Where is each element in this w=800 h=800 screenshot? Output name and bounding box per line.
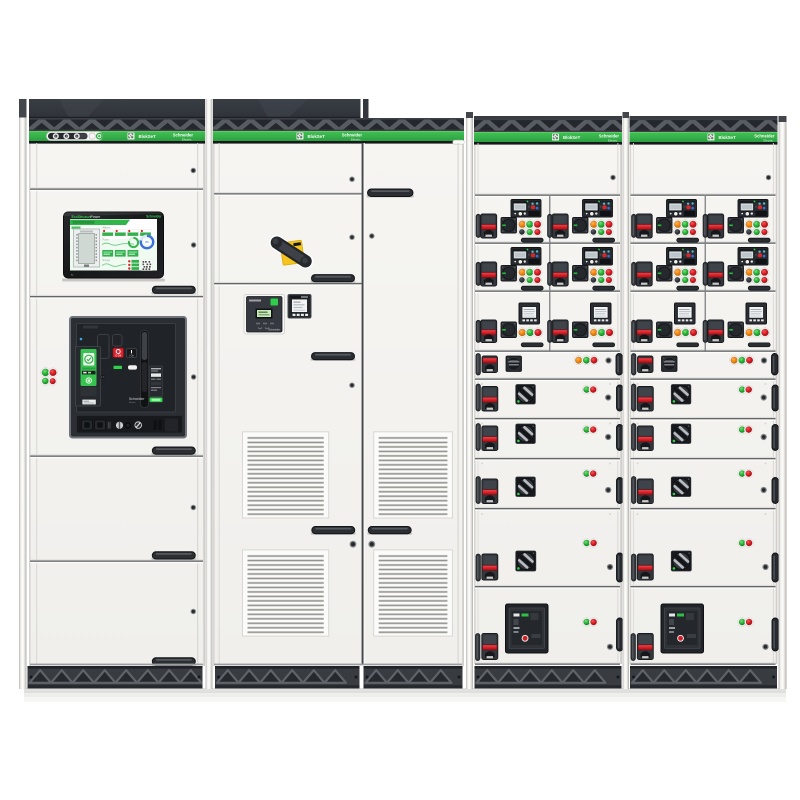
svg-text:BlokSeT: BlokSeT	[139, 134, 157, 139]
svg-text:Power: Power	[91, 215, 101, 219]
svg-text:io: io	[71, 272, 74, 276]
svg-text:Alarms: Alarms	[103, 226, 112, 230]
svg-text:Schneider: Schneider	[129, 397, 145, 401]
svg-text:86: 86	[145, 240, 149, 244]
svg-text:BlokSeT: BlokSeT	[308, 134, 326, 139]
svg-text:BlokSeT: BlokSeT	[719, 135, 737, 140]
svg-text:Energy: Energy	[103, 259, 111, 262]
svg-text:Electric: Electric	[764, 138, 774, 142]
svg-text:Electric: Electric	[608, 138, 618, 142]
svg-text:Electric: Electric	[129, 401, 136, 404]
svg-text:Schneider: Schneider	[268, 328, 280, 332]
svg-text:Electric: Electric	[182, 137, 192, 141]
svg-text:Electric: Electric	[351, 137, 361, 141]
svg-text:BlokSeT: BlokSeT	[563, 135, 581, 140]
svg-text:O Off: O Off	[115, 354, 121, 357]
svg-text:Power: Power	[103, 239, 110, 242]
svg-text:Schneider: Schneider	[146, 215, 162, 219]
svg-text:I On: I On	[129, 354, 134, 357]
